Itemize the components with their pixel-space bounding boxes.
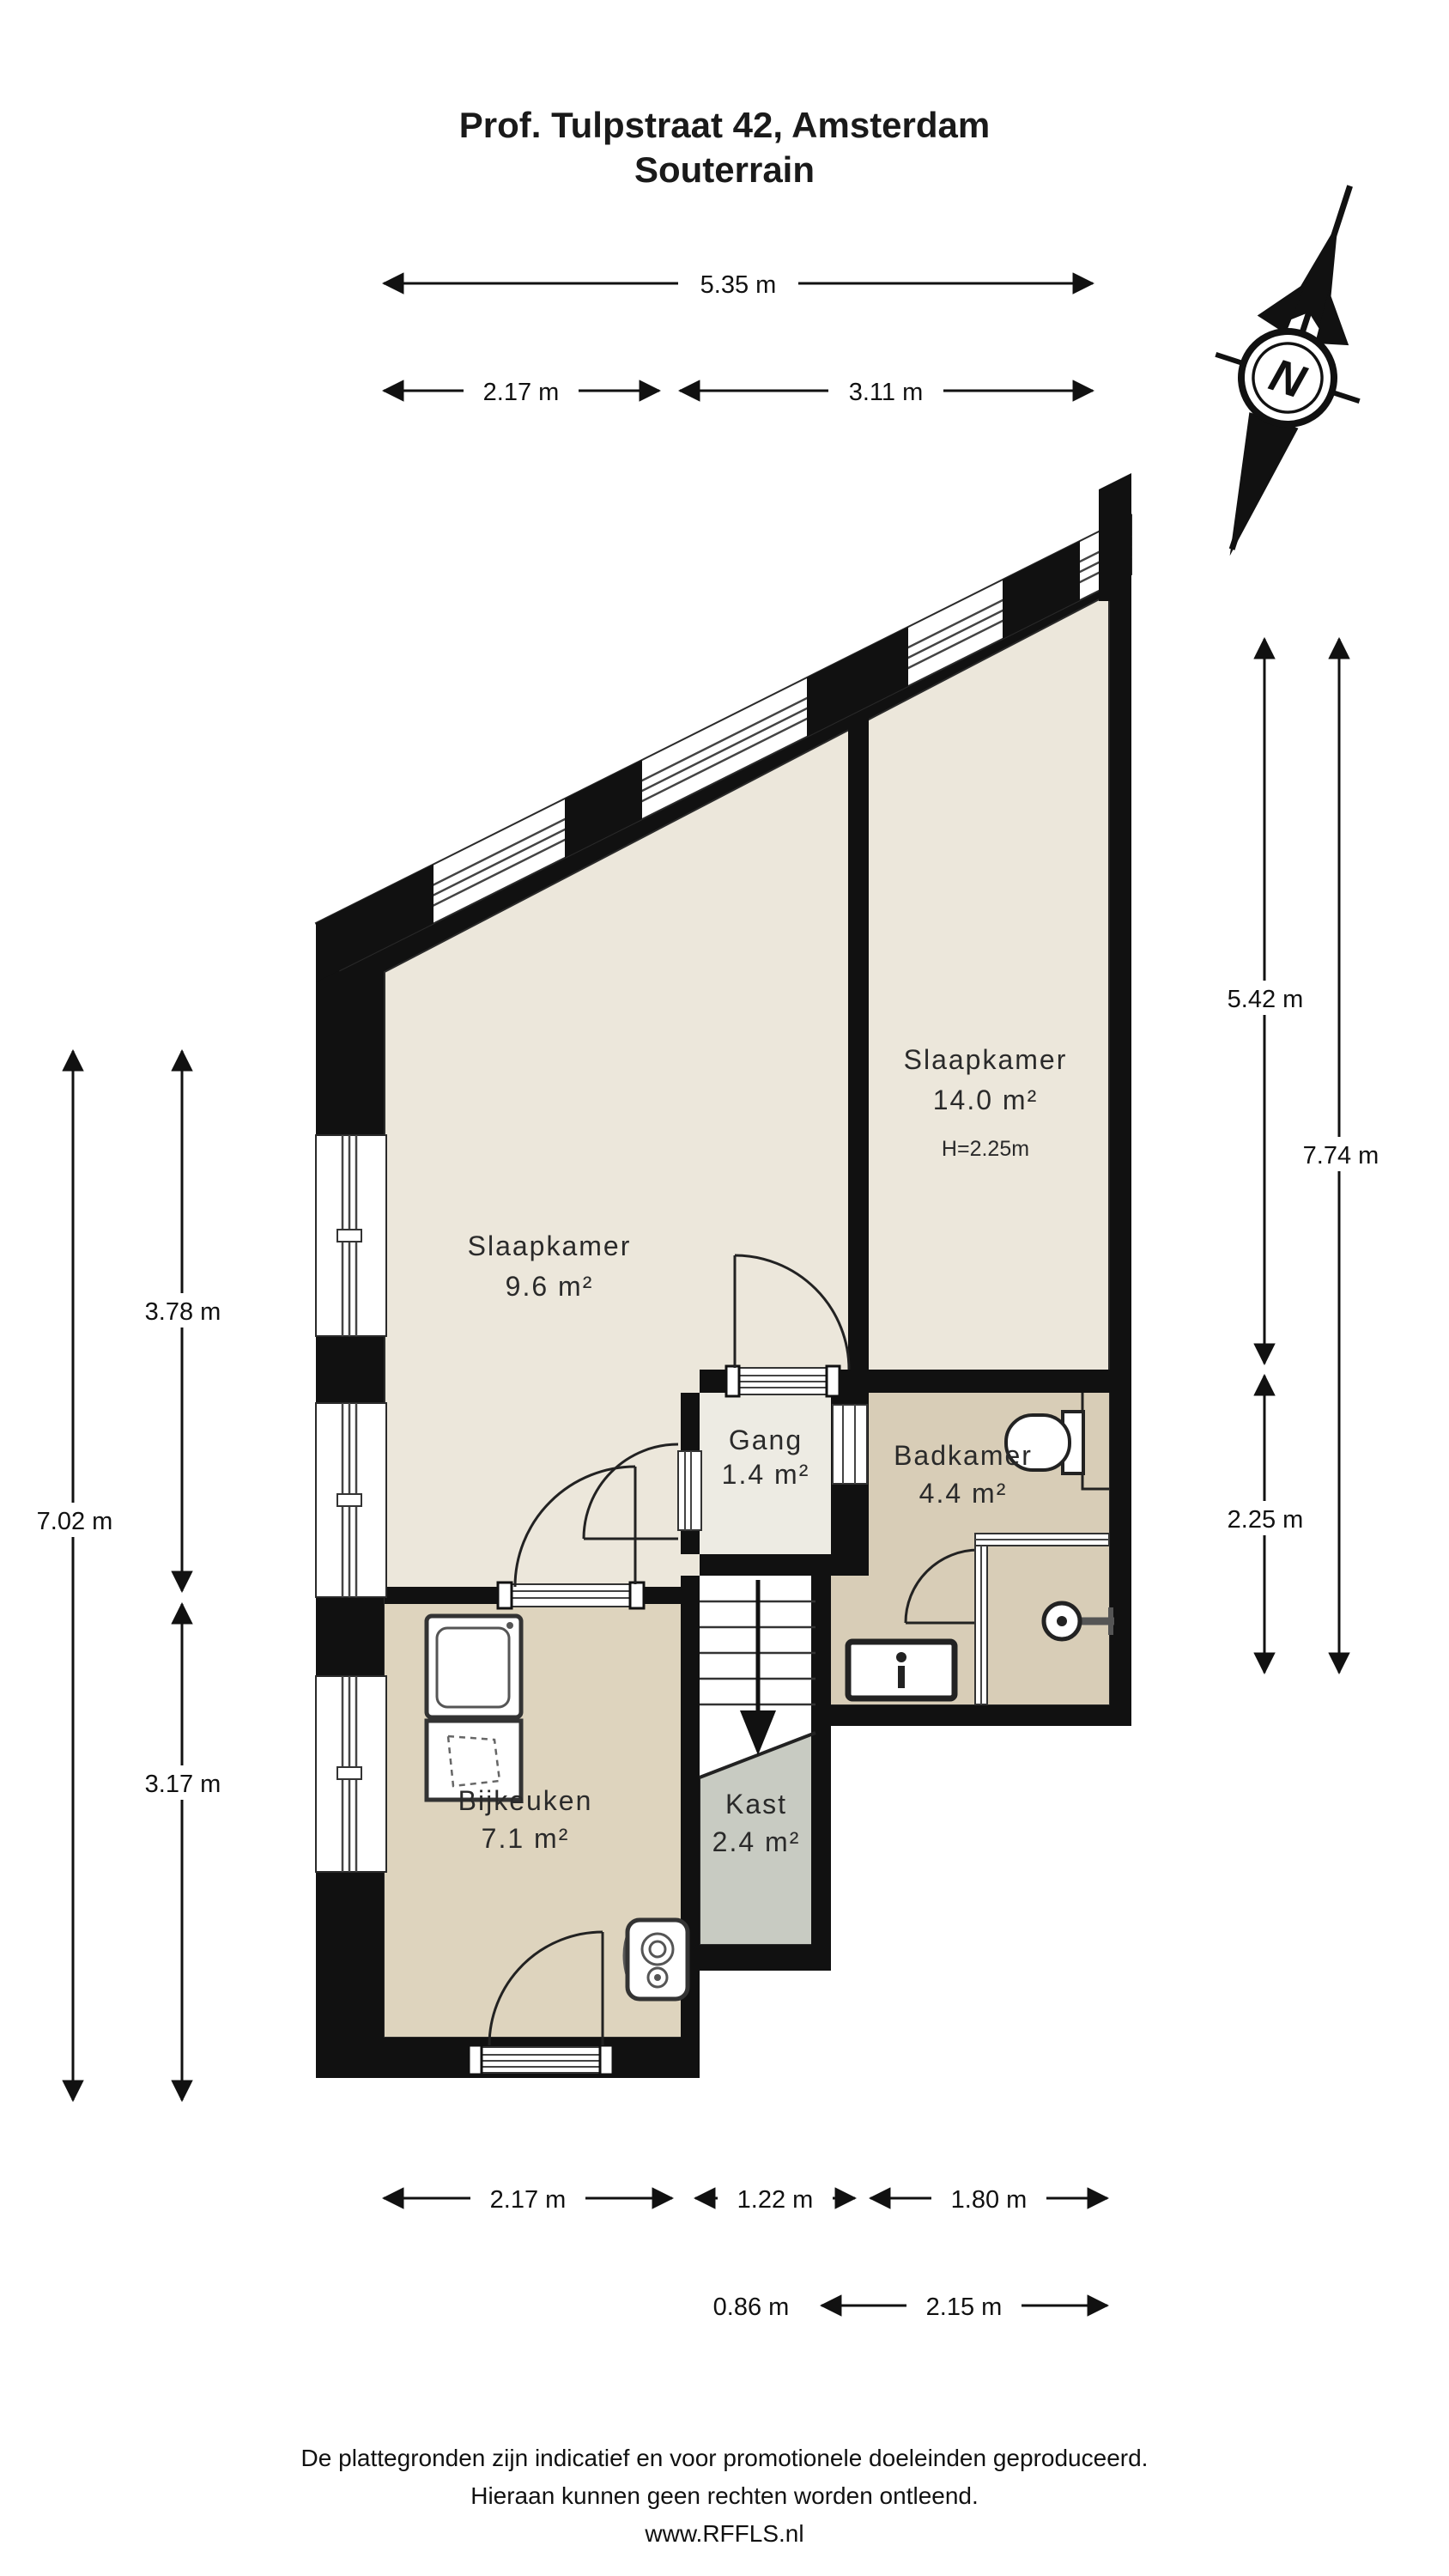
- room-name: Kast: [725, 1789, 787, 1820]
- room-area: 14.0 m²: [933, 1084, 1038, 1115]
- door-badkamer-frame: [833, 1405, 867, 1484]
- dim-left-upper: 3.78 m: [145, 1298, 221, 1326]
- floorplan-page: { "title": { "line1": "Prof. Tulpstraat …: [0, 0, 1449, 2576]
- left-wall-windows: [316, 1135, 386, 1872]
- room-name: Bijkeuken: [458, 1785, 593, 1816]
- dimension-left: [73, 1051, 182, 2100]
- boiler-icon: [624, 1920, 688, 1999]
- dim-bottom2-right: 2.15 m: [926, 2293, 1003, 2321]
- room-name: Badkamer: [894, 1440, 1033, 1471]
- dim-left-total: 7.02 m: [37, 1508, 113, 1535]
- sink-icon: [848, 1642, 955, 1698]
- washer-icon: [427, 1616, 521, 1717]
- dim-top-total: 5.35 m: [700, 271, 777, 299]
- dim-left-lower: 3.17 m: [145, 1771, 221, 1798]
- room-name: Slaapkamer: [468, 1230, 632, 1261]
- dim-bottom-left: 2.17 m: [490, 2186, 567, 2214]
- dim-top-left: 2.17 m: [483, 379, 560, 406]
- footer-disclaimer-line1: De plattegronden zijn indicatief en voor…: [301, 2445, 1149, 2471]
- room-area: 2.4 m²: [712, 1826, 801, 1857]
- room-height-note: H=2.25m: [942, 1137, 1029, 1161]
- room-area: 1.4 m²: [722, 1459, 810, 1490]
- compass-north-icon: N: [1158, 162, 1422, 579]
- dim-bottom-middle: 1.22 m: [737, 2186, 814, 2214]
- room-area: 7.1 m²: [482, 1823, 570, 1854]
- room-name: Slaapkamer: [904, 1044, 1068, 1075]
- footer-website: www.RFFLS.nl: [644, 2520, 803, 2547]
- footer-disclaimer-line2: Hieraan kunnen geen rechten worden ontle…: [470, 2482, 979, 2509]
- floorplan-canvas: Prof. Tulpstraat 42, Amsterdam Souterrai…: [0, 0, 1449, 2576]
- dim-right-lower: 2.25 m: [1228, 1506, 1304, 1534]
- dim-right-total: 7.74 m: [1303, 1142, 1379, 1170]
- room-area: 9.6 m²: [506, 1271, 594, 1302]
- dim-bottom2-left: 0.86 m: [713, 2293, 790, 2321]
- dim-bottom-right: 1.80 m: [951, 2186, 1028, 2214]
- room-area: 4.4 m²: [919, 1478, 1008, 1509]
- dim-top-right: 3.11 m: [849, 379, 924, 406]
- room-name: Gang: [729, 1425, 803, 1455]
- page-title-line1: Prof. Tulpstraat 42, Amsterdam: [459, 105, 991, 145]
- page-title-line2: Souterrain: [634, 149, 815, 190]
- dim-right-upper: 5.42 m: [1228, 986, 1304, 1013]
